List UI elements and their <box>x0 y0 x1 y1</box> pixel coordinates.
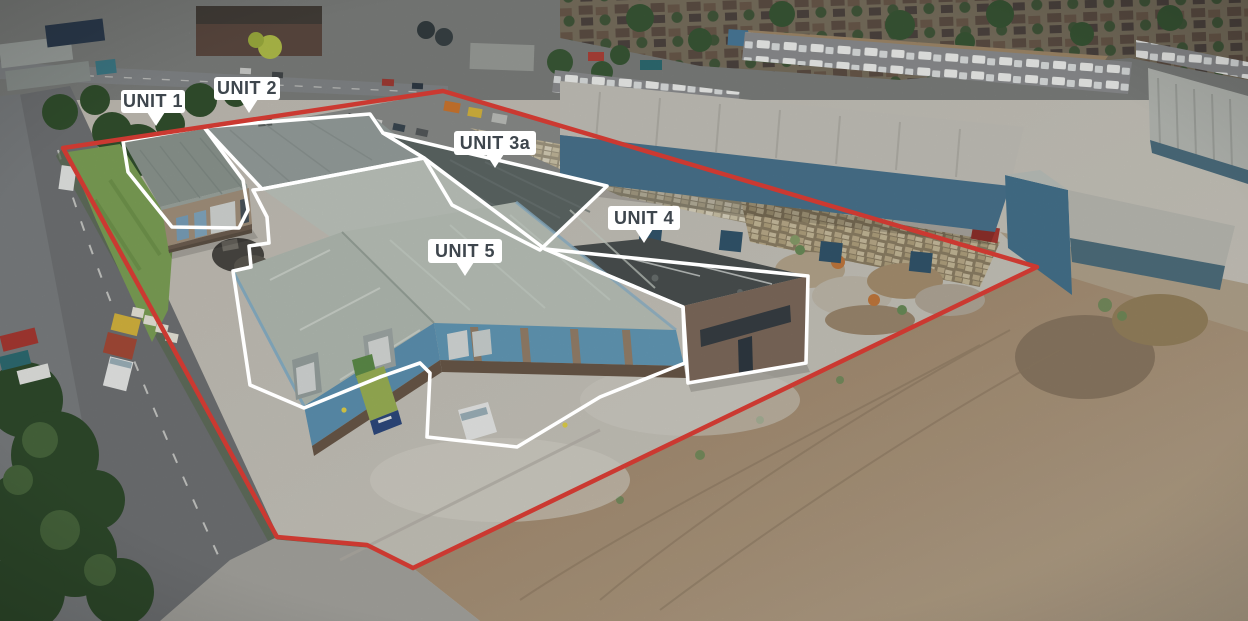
vignette <box>0 0 1248 621</box>
unit-4-label-text: UNIT 4 <box>614 208 674 228</box>
unit-5-label-text: UNIT 5 <box>435 241 495 261</box>
aerial-photo: UNIT 1 UNIT 2 UNIT 3a UNIT 4 UNIT 5 <box>0 0 1248 621</box>
aerial-photo-canvas: UNIT 1 UNIT 2 UNIT 3a UNIT 4 UNIT 5 <box>0 0 1248 621</box>
unit-2-label-text: UNIT 2 <box>217 78 277 98</box>
unit-1-label-text: UNIT 1 <box>123 91 183 111</box>
unit-3a-label-text: UNIT 3a <box>460 133 531 153</box>
